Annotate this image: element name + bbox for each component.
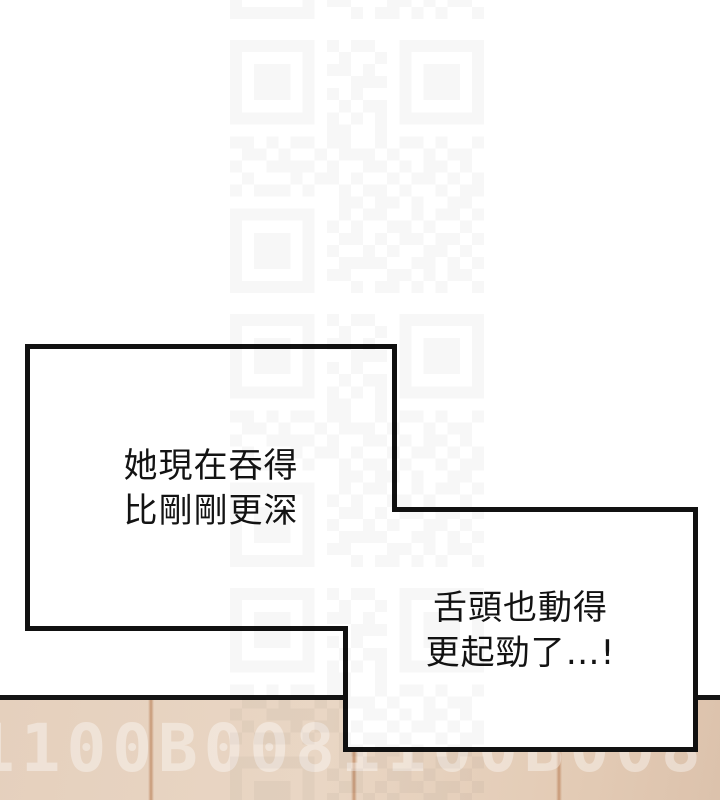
speech-bubble-right: 舌頭也動得 更起勁了…!: [343, 507, 698, 752]
qr-watermark-instance: [230, 40, 484, 293]
bubble-left-line-1: 她現在吞得: [124, 444, 299, 489]
comic-page: 1100B0081100B008 1100B0081100B008 舌頭也動得 …: [0, 0, 720, 800]
floor-watermark-digits-row-2: 1100B0081100B008: [0, 790, 720, 800]
speech-bubble-left-text: 她現在吞得 比剛剛更深: [124, 442, 299, 534]
bubble-join-patch: 她現在吞得 比剛剛更深: [30, 349, 392, 626]
qr-watermark-instance: [230, 0, 484, 19]
bubble-right-line-2: 更起勁了…!: [426, 631, 616, 676]
bubble-left-line-2: 比剛剛更深: [124, 489, 299, 534]
speech-bubble-right-text: 舌頭也動得 更起勁了…!: [426, 584, 616, 676]
bubble-right-line-1: 舌頭也動得: [426, 586, 616, 631]
